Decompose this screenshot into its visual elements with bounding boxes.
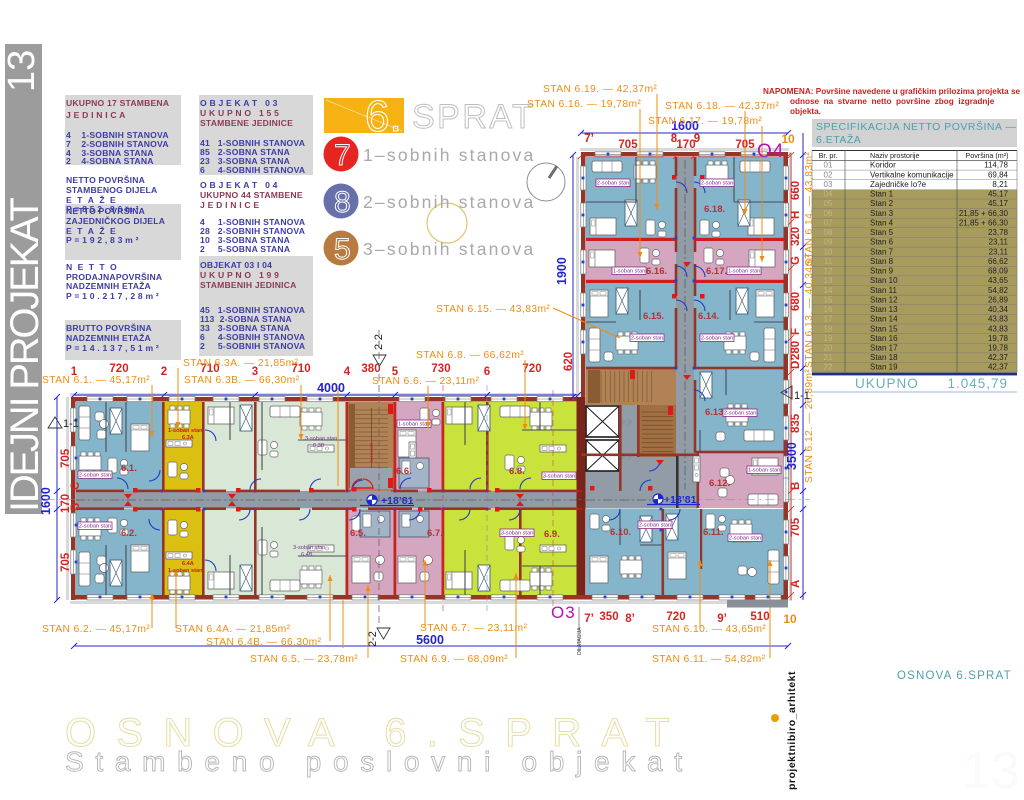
svg-text:18: 18 (824, 324, 833, 333)
svg-text:7: 7 (334, 139, 351, 172)
svg-text:STAN 6.2. — 45,17m²: STAN 6.2. — 45,17m² (42, 624, 150, 635)
svg-text:STAN 6.9. — 68,09m²: STAN 6.9. — 68,09m² (400, 654, 508, 665)
svg-text:11: 11 (824, 257, 833, 266)
svg-text:Stan 3: Stan 3 (870, 209, 894, 218)
svg-text:2-soban stan: 2-soban stan (724, 411, 756, 417)
svg-text:17: 17 (824, 315, 833, 324)
svg-text:1-soban stan: 1-soban stan (748, 468, 780, 474)
svg-text:6.10.: 6.10. (610, 527, 631, 538)
svg-text:16: 16 (824, 305, 833, 314)
svg-text:26,89: 26,89 (988, 295, 1009, 304)
svg-text:STAN 6.10. — 43,65m²: STAN 6.10. — 43,65m² (652, 624, 766, 635)
svg-text:OBJEKAT 03 I 04: OBJEKAT 03 I 04 (200, 260, 272, 270)
svg-text:Stan 18: Stan 18 (870, 353, 898, 362)
svg-text:6.12.: 6.12. (709, 478, 730, 489)
svg-text:2: 2 (161, 366, 167, 378)
svg-text:N E T T O: N E T T O (66, 262, 117, 272)
svg-text:6.11.: 6.11. (703, 527, 724, 538)
svg-text:5600: 5600 (416, 633, 444, 647)
svg-text:odnose na stvarne netto po: odnose na stvarne netto površine zbog iz… (790, 97, 995, 106)
svg-text:3-soban stan: 3-soban stan (501, 531, 533, 537)
svg-text:6.15.: 6.15. (643, 311, 664, 322)
svg-text:07: 07 (824, 218, 833, 227)
svg-text:14: 14 (824, 286, 833, 295)
svg-text:23,11: 23,11 (989, 247, 1009, 256)
svg-text:6.6.: 6.6. (396, 466, 412, 477)
svg-text:STAN 6.1. — 45,17m²: STAN 6.1. — 45,17m² (42, 375, 150, 386)
svg-text:13: 13 (1, 50, 43, 92)
svg-text:6.16.: 6.16. (646, 266, 667, 277)
svg-text:F: F (790, 328, 802, 335)
svg-text:2 4-SOBNA STANA: 2 4-SOBNA STANA (66, 156, 154, 166)
svg-text:66,62: 66,62 (988, 257, 1009, 266)
svg-text:10: 10 (783, 612, 797, 626)
svg-text:objekta.: objekta. (790, 107, 821, 116)
svg-text:19: 19 (824, 334, 833, 343)
svg-text:705: 705 (790, 517, 802, 537)
svg-text:43,65: 43,65 (988, 276, 1009, 285)
svg-text:P = 1 4 . 1 3 7 , 5 1 m ²: P = 1 4 . 1 3 7 , 5 1 m ² (66, 343, 159, 353)
svg-text:114,78: 114,78 (984, 161, 1008, 170)
svg-text:12: 12 (824, 267, 833, 276)
svg-text:13.: 13. (962, 742, 1024, 800)
svg-text:STAN 6.3B. — 66,30m²: STAN 6.3B. — 66,30m² (184, 375, 300, 386)
svg-text:350: 350 (599, 611, 618, 623)
svg-text:NADZEMNIH ETAŽA: NADZEMNIH ETAŽA (66, 280, 151, 291)
svg-text:P = 1 9 2 , 8 3 m ²: P = 1 9 2 , 8 3 m ² (66, 235, 139, 245)
svg-text:720: 720 (109, 363, 128, 375)
svg-text:1-soban stan: 1-soban stan (398, 422, 430, 428)
svg-text:10: 10 (824, 247, 833, 256)
svg-text:STAN 6.18. — 42,37m²: STAN 6.18. — 42,37m² (665, 101, 779, 112)
svg-text:6.4A: 6.4A (182, 561, 194, 567)
svg-text:1-soban stan: 1-soban stan (728, 269, 760, 275)
svg-text:1600: 1600 (39, 487, 53, 515)
svg-text:720: 720 (666, 611, 685, 623)
svg-text:510: 510 (750, 611, 769, 623)
svg-text:320: 320 (790, 227, 802, 246)
svg-text:NETTO POVRŠINA: NETTO POVRŠINA (66, 174, 145, 185)
svg-text:705: 705 (60, 448, 72, 468)
svg-text:3-soban stan: 3-soban stan (305, 436, 337, 442)
svg-text:A: A (790, 580, 802, 588)
svg-text:G: G (790, 256, 802, 265)
svg-text:6.: 6. (365, 92, 402, 141)
svg-text:4000: 4000 (317, 381, 345, 395)
svg-text:Br. pr.: Br. pr. (819, 151, 838, 160)
svg-text:6.5.: 6.5. (350, 528, 366, 539)
svg-text:B: B (790, 482, 802, 490)
svg-text:Stan 1: Stan 1 (870, 190, 894, 199)
svg-text:Stan 15: Stan 15 (870, 324, 898, 333)
svg-text:6.3A: 6.3A (182, 435, 194, 441)
svg-text:P = 1 0 . 2 1 7 , 2 8 m ²: P = 1 0 . 2 1 7 , 2 8 m ² (66, 291, 159, 301)
svg-text:STAN 6.7. — 23,11m²: STAN 6.7. — 23,11m² (420, 623, 528, 634)
svg-text:Stan 14: Stan 14 (870, 315, 898, 324)
svg-text:280: 280 (790, 341, 802, 360)
svg-text:U K U P N O 1 9 9: U K U P N O 1 9 9 (200, 270, 279, 280)
svg-text:8x16,5x30: 8x16,5x30 (369, 442, 374, 462)
svg-text:6.18.: 6.18. (704, 204, 725, 215)
svg-text:UKUPNO 17 STAMBENA: UKUPNO 17 STAMBENA (66, 98, 169, 108)
svg-text:B: B (70, 503, 82, 511)
svg-text:6.9.: 6.9. (544, 529, 560, 540)
svg-text:STAN 6.4B. — 66,30m²: STAN 6.4B. — 66,30m² (206, 637, 322, 648)
svg-text:6.7.: 6.7. (427, 528, 443, 539)
svg-text:STAN 6.11. — 54,82m²: STAN 6.11. — 54,82m² (652, 654, 766, 665)
svg-text:UKUPNO: UKUPNO (855, 376, 919, 391)
svg-text:H: H (790, 211, 802, 219)
svg-text:O B J E K A T 0 4: O B J E K A T 0 4 (200, 180, 278, 190)
svg-text:Stan 9: Stan 9 (870, 267, 894, 276)
svg-text:23,11: 23,11 (989, 238, 1009, 247)
svg-text:13: 13 (824, 276, 833, 285)
svg-text:1-1: 1-1 (63, 418, 79, 430)
svg-text:6.ETAŽA: 6.ETAŽA (816, 133, 861, 146)
svg-text:Stan 6: Stan 6 (870, 238, 894, 247)
svg-text:6.3B: 6.3B (313, 443, 325, 449)
svg-text:NAPOMENA: Površine navedene u: NAPOMENA: Površine navedene u grafičkim … (763, 87, 1021, 96)
svg-text:Stan 10: Stan 10 (870, 276, 898, 285)
svg-text:Koridor: Koridor (870, 161, 896, 170)
svg-text:8: 8 (334, 186, 351, 219)
svg-text:20: 20 (824, 344, 833, 353)
svg-text:Stan 13: Stan 13 (870, 305, 898, 314)
svg-text:680: 680 (790, 292, 802, 311)
svg-text:2-soban stan: 2-soban stan (631, 336, 663, 342)
svg-text:2-soban stan: 2-soban stan (597, 181, 629, 187)
svg-text:Vertikalne komunikacije: Vertikalne komunikacije (870, 170, 954, 179)
svg-text:STAN 6.15. — 43,83m²: STAN 6.15. — 43,83m² (436, 304, 550, 315)
svg-text:STAN 6.3A. — 21,85m²: STAN 6.3A. — 21,85m² (183, 358, 299, 369)
svg-text:Stan 2: Stan 2 (870, 199, 894, 208)
svg-text:43,83: 43,83 (988, 324, 1009, 333)
svg-text:2–sobnih stanova: 2–sobnih stanova (363, 192, 535, 212)
svg-text:7’: 7’ (584, 613, 594, 625)
svg-text:UKUPNO 44 STAMBENE: UKUPNO 44 STAMBENE (200, 190, 303, 200)
svg-text:23,78: 23,78 (988, 228, 1009, 237)
svg-text:2-soban stan: 2-soban stan (79, 524, 111, 530)
svg-text:19,78: 19,78 (988, 344, 1009, 353)
svg-text:6.2.: 6.2. (121, 528, 137, 539)
svg-text:1–sobnih stanova: 1–sobnih stanova (363, 145, 535, 165)
svg-text:2 5-SOBNA STANA: 2 5-SOBNA STANA (200, 244, 290, 254)
svg-text:21,85 + 66,30: 21,85 + 66,30 (959, 218, 1009, 227)
svg-text:09: 09 (824, 238, 833, 247)
svg-text:BRUTTO POVRŠINA: BRUTTO POVRŠINA (66, 322, 152, 333)
svg-text:380: 380 (361, 363, 380, 375)
svg-text:Stan 7: Stan 7 (870, 247, 894, 256)
svg-text:STAN 6.6. — 23,11m²: STAN 6.6. — 23,11m² (372, 376, 480, 387)
svg-text:2 5-SOBNIH STANOVA: 2 5-SOBNIH STANOVA (200, 341, 305, 351)
svg-text:SPECIFIKACIJA NETTO POVRŠINA —: SPECIFIKACIJA NETTO POVRŠINA — (816, 120, 1016, 133)
svg-text:1900: 1900 (555, 257, 569, 285)
svg-text:1-soban stan: 1-soban stan (613, 269, 645, 275)
svg-text:Stan 12: Stan 12 (870, 295, 898, 304)
svg-text:OSNOVA 6.SPRAT: OSNOVA 6.SPRAT (897, 670, 1012, 682)
svg-text:Stan 8: Stan 8 (870, 257, 894, 266)
svg-text:Stan 16: Stan 16 (870, 334, 898, 343)
svg-text:Zajedničke lo?e: Zajedničke lo?e (870, 180, 927, 189)
svg-text:U K U P N O 1 5 5: U K U P N O 1 5 5 (200, 108, 279, 118)
svg-text:1.045,79: 1.045,79 (947, 376, 1008, 391)
svg-text:1-1: 1-1 (794, 390, 810, 402)
svg-text:45,17: 45,17 (988, 199, 1009, 208)
svg-text:6.4B: 6.4B (301, 552, 313, 558)
svg-text:projektnibiro_arhitekt: projektnibiro_arhitekt (786, 671, 798, 790)
svg-text:ZAJEDNIČKOG DIJELA: ZAJEDNIČKOG DIJELA (66, 215, 165, 226)
svg-text:43,83: 43,83 (988, 315, 1009, 324)
svg-text:Stan 5: Stan 5 (870, 228, 894, 237)
svg-text:2-soban stan: 2-soban stan (701, 336, 733, 342)
svg-text:69,84: 69,84 (988, 170, 1009, 179)
svg-text:STAN 6.8. — 66,62m²: STAN 6.8. — 66,62m² (416, 350, 524, 361)
svg-text:170: 170 (676, 139, 695, 151)
svg-text:54,82: 54,82 (988, 286, 1009, 295)
svg-text:Stambeno poslovni objekat: Stambeno poslovni objekat (65, 746, 694, 777)
svg-text:STAN 6.13. — 40,34m²: STAN 6.13. — 40,34m² (804, 254, 815, 368)
svg-text:705: 705 (60, 552, 72, 572)
svg-text:730: 730 (431, 363, 450, 375)
svg-text:2-soban stan: 2-soban stan (639, 523, 671, 529)
svg-text:05: 05 (824, 199, 833, 208)
svg-text:STAN 6.19. — 42,37m²: STAN 6.19. — 42,37m² (543, 84, 657, 95)
svg-text:DILATACIJA: DILATACIJA (577, 627, 583, 655)
svg-text:6.17.: 6.17. (706, 266, 727, 277)
svg-text:3500: 3500 (785, 442, 799, 470)
svg-text:J E D I N I C E: J E D I N I C E (200, 200, 259, 210)
svg-text:40,34: 40,34 (988, 305, 1009, 314)
svg-text:2-soban stan: 2-soban stan (79, 473, 111, 479)
svg-text:835: 835 (790, 413, 802, 433)
svg-text:21,85 + 66,30: 21,85 + 66,30 (959, 209, 1009, 218)
svg-text:1-soban stan: 1-soban stan (168, 568, 203, 574)
svg-text:15: 15 (824, 295, 833, 304)
svg-text:3–sobnih stanova: 3–sobnih stanova (363, 239, 535, 259)
svg-text:660: 660 (790, 181, 802, 200)
svg-text:2-soban stan: 2-soban stan (701, 181, 733, 187)
svg-text:42,37: 42,37 (988, 363, 1009, 372)
svg-text:8’: 8’ (625, 613, 635, 625)
svg-text:STAN 6.14. — 43,83m²: STAN 6.14. — 43,83m² (804, 152, 815, 266)
svg-text:19,78: 19,78 (988, 334, 1009, 343)
svg-text:O B J E K A T 0 3: O B J E K A T 0 3 (200, 98, 278, 108)
svg-text:620: 620 (563, 352, 575, 371)
svg-text:D’: D’ (790, 358, 802, 370)
svg-text:6 4-SOBNIH STANOVA: 6 4-SOBNIH STANOVA (200, 165, 305, 175)
svg-text:21: 21 (824, 353, 833, 362)
svg-text:Stan 17: Stan 17 (870, 344, 898, 353)
svg-text:STAN 6.5. — 23,78m²: STAN 6.5. — 23,78m² (250, 654, 358, 665)
svg-text:NETTO POVRŠINA: NETTO POVRŠINA (66, 205, 145, 216)
svg-text:IDEJNI PROJEKAT: IDEJNI PROJEKAT (3, 197, 47, 512)
svg-text:705: 705 (618, 139, 638, 151)
svg-text:9: 9 (694, 133, 700, 145)
svg-text:6.8.: 6.8. (509, 466, 525, 477)
svg-text:02: 02 (824, 170, 833, 179)
svg-text:Površina (m²): Površina (m²) (965, 151, 1008, 160)
svg-text:8,21: 8,21 (992, 180, 1008, 189)
svg-text:06: 06 (824, 209, 833, 218)
svg-text:42,37: 42,37 (988, 353, 1009, 362)
svg-text:45,17: 45,17 (988, 190, 1009, 199)
svg-text:22: 22 (824, 363, 833, 372)
svg-text:6: 6 (484, 366, 490, 378)
svg-text:STAN 6.4A. — 21,85m²: STAN 6.4A. — 21,85m² (175, 624, 291, 635)
svg-text:STAMBENIH JEDINICA: STAMBENIH JEDINICA (200, 280, 297, 290)
svg-text:6.14.: 6.14. (698, 311, 719, 322)
svg-text:NADZEMNIH ETAŽA: NADZEMNIH ETAŽA (66, 332, 151, 343)
svg-text:2-2: 2-2 (367, 631, 379, 647)
svg-text:03: 03 (824, 180, 833, 189)
svg-text:STAMBENE JEDINICE: STAMBENE JEDINICE (200, 118, 293, 128)
svg-text:3-soban stan: 3-soban stan (543, 474, 575, 480)
svg-text:3-soban stan: 3-soban stan (293, 545, 325, 551)
svg-text:1-soban stan: 1-soban stan (168, 428, 203, 434)
svg-text:O4: O4 (757, 141, 784, 162)
svg-text:08: 08 (824, 228, 833, 237)
svg-text:01: 01 (824, 161, 833, 170)
svg-text:Stan 4: Stan 4 (870, 218, 894, 227)
svg-text:04: 04 (824, 190, 833, 199)
svg-text:68,09: 68,09 (988, 267, 1009, 276)
svg-text:Stan 19: Stan 19 (870, 363, 898, 372)
svg-text:SPRAT: SPRAT (412, 98, 535, 136)
svg-text:2-soban stan: 2-soban stan (729, 536, 761, 542)
svg-text:C: C (70, 482, 82, 490)
svg-text:4: 4 (344, 366, 351, 378)
svg-text:8: 8 (671, 133, 678, 145)
svg-text:5: 5 (334, 233, 351, 266)
svg-text:STAN 6.12. — 26,89m²: STAN 6.12. — 26,89m² (804, 369, 815, 483)
svg-text:6.1.: 6.1. (121, 463, 137, 474)
svg-text:Stan 11: Stan 11 (870, 286, 898, 295)
svg-text:J E D I N I C A: J E D I N I C A (66, 110, 126, 120)
svg-text:Naziv prostorije: Naziv prostorije (870, 151, 920, 160)
svg-text:7’: 7’ (584, 133, 594, 145)
svg-text:STAMBENOG DIJELA: STAMBENOG DIJELA (66, 185, 157, 195)
svg-text:STAN 6.16. — 19,78m²: STAN 6.16. — 19,78m² (527, 99, 641, 110)
svg-text:O3: O3 (551, 603, 576, 622)
